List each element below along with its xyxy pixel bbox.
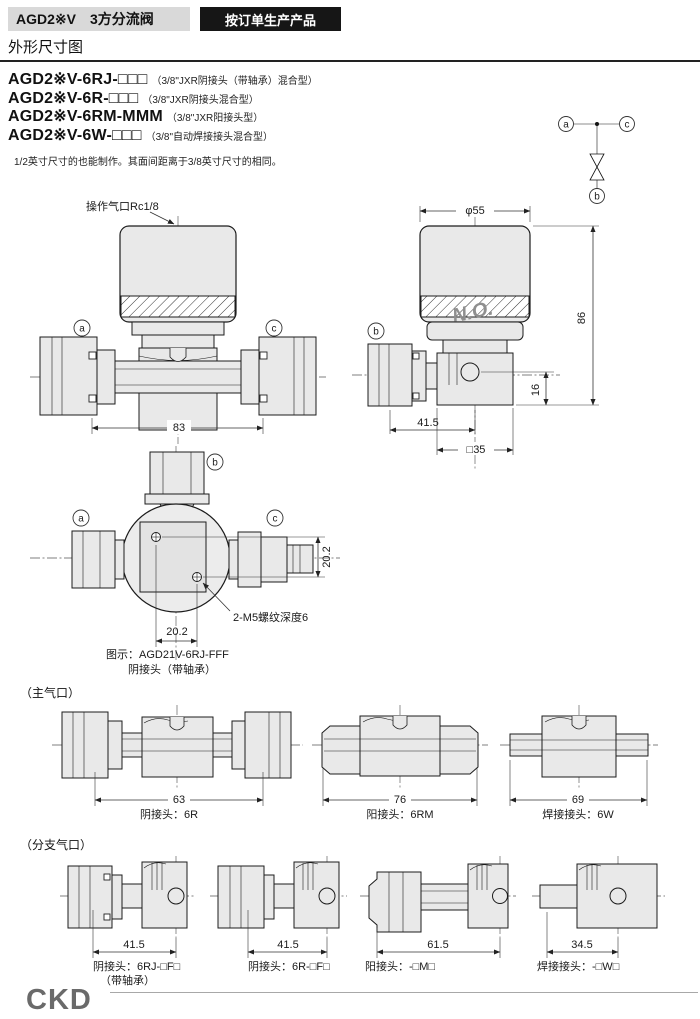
dim-76: 76 xyxy=(394,794,406,806)
ckd-logo: CKD xyxy=(26,984,92,1017)
dim-dia55: φ55 xyxy=(465,205,484,217)
dim-34-5: 34.5 xyxy=(571,939,592,951)
main-port-6w-label: 焊接接头：6W xyxy=(542,807,614,821)
dimension-drawings: a c b 操作气口Rc1/8 xyxy=(0,100,700,990)
figure-caption-2: 阴接头（带轴承） xyxy=(128,662,216,676)
fitting-a xyxy=(40,337,97,415)
dim-83: 83 xyxy=(173,422,185,434)
front-view-drawing: 操作气口Rc1/8 a c xyxy=(30,199,326,444)
main-port-6rm-label: 阳接头：6RM xyxy=(366,808,433,821)
dim-sq35: □35 xyxy=(467,444,486,456)
dim-63: 63 xyxy=(173,794,185,806)
model-row: AGD2※V-6RJ-□□□ （3/8"JXR阴接头（带轴承）混合型） xyxy=(8,69,318,88)
dim-41-5-rj: 41.5 xyxy=(123,939,144,951)
product-title: AGD2※V 3方分流阀 xyxy=(8,7,190,31)
branch-port-m-drawing: 61.5 阳接头：-□M□ xyxy=(360,856,516,973)
branch-port-w-drawing: 34.5 焊接接头：-□W□ xyxy=(532,856,665,973)
dim-69: 69 xyxy=(572,794,584,806)
flow-schematic: a c b xyxy=(559,117,635,204)
dim-61-5: 61.5 xyxy=(427,939,448,951)
top-fitting-a xyxy=(72,531,115,588)
top-fitting-b xyxy=(150,452,204,494)
fitting-b xyxy=(368,344,412,406)
branch-6r-label: 阴接头：6R-□F□ xyxy=(248,960,330,973)
schematic-port-c-label: c xyxy=(625,120,630,131)
branch-port-6r-drawing: 41.5 阴接头：6R-□F□ xyxy=(210,856,347,973)
model-code: AGD2※V-6RJ-□□□ xyxy=(8,69,147,89)
branch-hole xyxy=(461,363,479,381)
top-port-a-label: a xyxy=(78,514,84,525)
section-divider xyxy=(0,60,700,62)
model-desc: （3/8"JXR阴接头（带轴承）混合型） xyxy=(151,72,317,87)
branch-6rj-label2: （带轴承） xyxy=(100,973,155,987)
branch-6rj-label: 阴接头：6RJ-□F□ xyxy=(93,960,181,973)
dim-41-5-side: 41.5 xyxy=(417,417,438,429)
valve-symbol xyxy=(590,154,604,167)
main-port-6r-label: 阴接头：6R xyxy=(140,808,198,821)
footer-divider xyxy=(110,992,698,993)
side-port-b-label: b xyxy=(373,327,379,338)
product-title-text: AGD2※V 3方分流阀 xyxy=(16,9,154,29)
made-to-order-badge: 按订单生产产品 xyxy=(200,7,341,31)
front-port-a-label: a xyxy=(79,324,85,335)
pilot-port-label: 操作气口Rc1/8 xyxy=(86,199,159,213)
main-port-6w-drawing: 69 焊接接头：6W xyxy=(500,705,658,821)
top-port-c-label: c xyxy=(273,514,278,525)
badge-text: 按订单生产产品 xyxy=(225,10,316,29)
thread-note: 2-M5螺纹深度6 xyxy=(233,610,308,624)
front-port-c-label: c xyxy=(272,324,277,335)
main-port-section-title: （主气口） xyxy=(20,685,80,700)
top-port-b-label: b xyxy=(212,458,218,469)
dim-20-2-h: 20.2 xyxy=(166,626,187,638)
main-port-6rm-drawing: 76 阳接头：6RM xyxy=(312,705,488,821)
branch-m-label: 阳接头：-□M□ xyxy=(365,960,435,973)
top-view-drawing: b a c 20.2 20.2 xyxy=(30,446,340,676)
side-view-drawing: φ55 N.O. b 86 16 41.5 xyxy=(352,203,599,470)
actuator-hatch-band xyxy=(121,296,235,317)
schematic-port-b-label: b xyxy=(594,192,600,203)
branch-port-6rj-drawing: 41.5 阴接头：6RJ-□F□ （带轴承） xyxy=(60,856,196,987)
top-fitting-c xyxy=(229,540,238,579)
branch-w-label: 焊接接头：-□W□ xyxy=(537,959,620,973)
dim-86: 86 xyxy=(576,312,588,324)
dim-41-5-r: 41.5 xyxy=(277,939,298,951)
section-title: 外形尺寸图 xyxy=(8,36,83,57)
main-port-6r-drawing: 63 阴接头：6R xyxy=(52,705,303,821)
dim-16: 16 xyxy=(530,384,542,396)
branch-port-section-title: （分支气口） xyxy=(20,837,92,852)
schematic-port-a-label: a xyxy=(563,120,569,131)
figure-caption-1: 图示：AGD21V-6RJ-FFF xyxy=(106,648,229,661)
dim-20-2-v: 20.2 xyxy=(321,546,333,567)
fitting-c xyxy=(259,337,316,415)
